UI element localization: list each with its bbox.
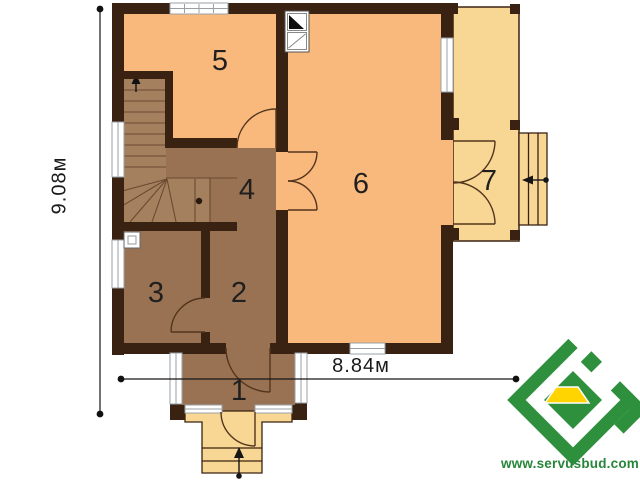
wall-room5-bottom — [167, 138, 237, 148]
wall-bottom-c — [385, 343, 453, 354]
wall-vestibule-corner-left — [170, 405, 185, 420]
window-left-lower — [112, 240, 124, 288]
wall-room32-divider — [201, 222, 210, 298]
opening-hall-room6 — [276, 152, 288, 210]
wall-stair-right — [165, 71, 173, 148]
wall-right-c — [441, 225, 453, 354]
window-vestibule-bottom-left — [185, 405, 222, 413]
wall-stub-terrace-a — [453, 118, 459, 130]
terrace-post-top — [510, 4, 520, 14]
dimension-line-vertical — [97, 6, 104, 418]
terrace-post-mid — [510, 120, 520, 130]
wall-stair-top — [112, 71, 173, 79]
servusbud-logo — [516, 338, 640, 466]
opening-room5 — [237, 138, 276, 148]
wall-bottom-a — [112, 343, 226, 354]
terrace-slab — [453, 7, 519, 241]
dimension-label-horizontal: 8.84м — [301, 355, 421, 378]
wall-left — [112, 3, 124, 355]
wall-hall-rooms23 — [112, 222, 237, 231]
website-url: www.servusbud.com — [500, 456, 640, 471]
opening-room3-room2 — [201, 298, 210, 332]
window-top — [170, 3, 228, 14]
room-label-1: 1 — [219, 375, 259, 407]
vent-box-icon — [124, 232, 140, 248]
room-label-2: 2 — [219, 277, 259, 309]
floor-plan-drawing — [0, 0, 640, 480]
room-label-7: 7 — [469, 165, 509, 197]
room-label-4: 4 — [227, 174, 267, 206]
chimney-flue-icon — [285, 11, 309, 52]
opening-room2-vestibule — [226, 343, 270, 354]
dimension-label-vertical: 9.08м — [49, 126, 72, 246]
window-room6-right — [441, 38, 453, 92]
room-label-3: 3 — [136, 277, 176, 309]
wall-stub-terrace-b — [453, 228, 459, 240]
window-room6-bottom — [350, 343, 385, 354]
room-label-6: 6 — [341, 168, 381, 200]
opening-room6-terrace — [441, 140, 453, 225]
window-left-upper — [112, 122, 124, 177]
window-vestibule-bottom-right — [255, 405, 292, 413]
wall-right-b — [441, 92, 453, 140]
wall-vestibule-corner-right — [292, 405, 307, 420]
room-label-5: 5 — [200, 45, 240, 77]
wall-right-a — [441, 3, 453, 38]
stair-newel-post — [196, 198, 202, 204]
terrace-post-bottom — [510, 230, 520, 240]
wall-room56-divider-b — [276, 210, 288, 354]
wall-room32-stub — [201, 332, 210, 344]
floor-plan-page: 1 2 3 4 5 6 7 9.08м 8.84м www.servusbud.… — [0, 0, 640, 480]
